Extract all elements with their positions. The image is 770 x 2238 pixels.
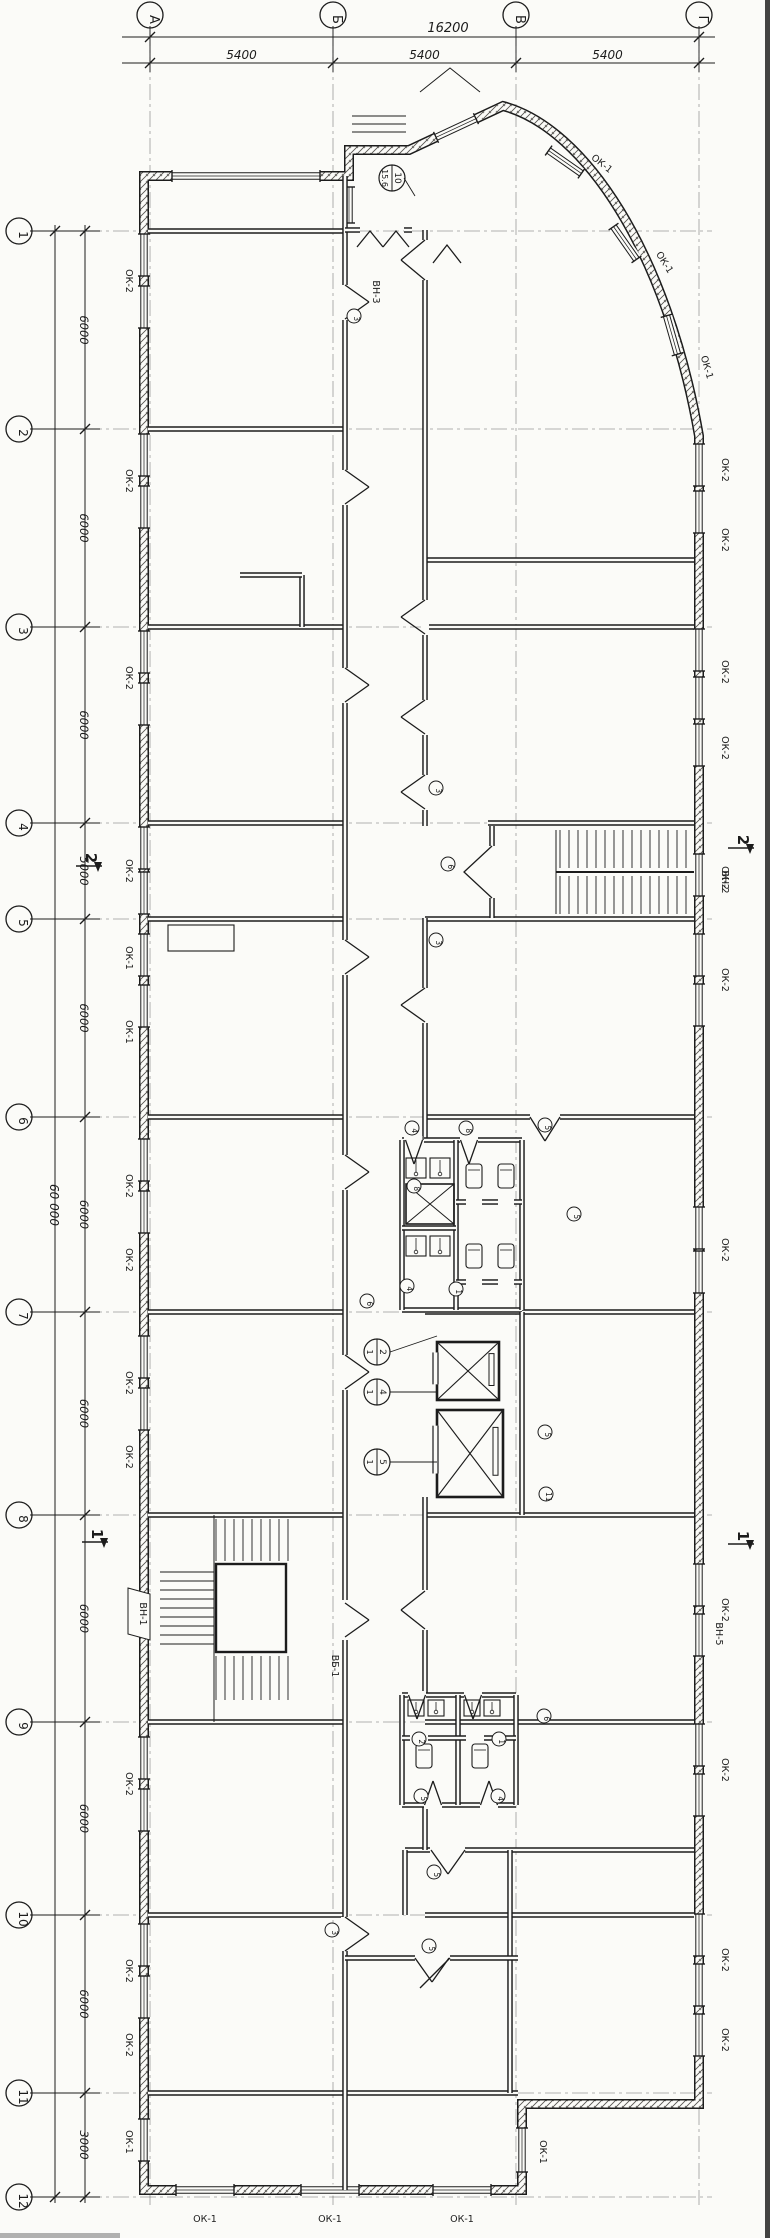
plan-label: ОК-2 xyxy=(123,1371,134,1395)
plan-label: ОК-2 xyxy=(123,859,134,883)
window-symbol xyxy=(138,2119,150,2161)
door-symbol xyxy=(461,1136,478,1164)
plan-label: ОК-2 xyxy=(123,1959,134,1983)
plan-label: ОК-2 xyxy=(719,1238,730,1262)
window-symbol xyxy=(693,444,705,486)
window-symbol xyxy=(693,629,705,671)
window-symbol xyxy=(693,854,705,896)
plan-label: ОК-2 xyxy=(123,666,134,690)
plan-label: ОК-2 xyxy=(123,269,134,293)
svg-text:1: 1 xyxy=(497,1739,506,1744)
window-symbol xyxy=(693,491,705,533)
window-symbol xyxy=(138,1139,150,1181)
window-symbol xyxy=(138,872,150,914)
window-symbol xyxy=(693,1964,705,2006)
window-symbol xyxy=(138,1976,150,2018)
plan-label: ОК-1 xyxy=(123,2130,134,2154)
plan-label: ОК-1 xyxy=(537,2140,548,2164)
window-symbol xyxy=(138,486,150,528)
window-symbol xyxy=(693,934,705,976)
door-symbol xyxy=(465,1691,482,1719)
svg-text:1: 1 xyxy=(734,1531,752,1541)
plan-label: ОК-2 xyxy=(123,469,134,493)
svg-text:3000: 3000 xyxy=(77,2130,91,2159)
svg-text:5400: 5400 xyxy=(409,48,440,62)
drawing-sheet: 16200540054005400АБВГ60 0006000600060005… xyxy=(0,0,770,2238)
door-symbol xyxy=(401,240,429,280)
svg-text:11: 11 xyxy=(544,1492,553,1502)
svg-text:12: 12 xyxy=(16,2193,30,2208)
plan-label: ВН-1 xyxy=(137,1602,148,1625)
door-symbol xyxy=(341,668,369,702)
window-symbol xyxy=(693,677,705,719)
plan-label: ОК-1 xyxy=(123,946,134,970)
interior-walls xyxy=(148,176,694,2190)
svg-text:1: 1 xyxy=(365,1389,374,1394)
svg-text:5: 5 xyxy=(427,1946,436,1951)
svg-text:6000: 6000 xyxy=(77,710,91,739)
window-symbol xyxy=(138,934,150,976)
svg-text:8: 8 xyxy=(412,1186,421,1191)
door-symbol xyxy=(406,1136,423,1164)
plan-label: ОК-2 xyxy=(719,1598,730,1622)
svg-text:6: 6 xyxy=(365,1301,374,1306)
svg-text:1: 1 xyxy=(365,1349,374,1354)
svg-text:3: 3 xyxy=(16,627,30,635)
svg-text:5: 5 xyxy=(543,1125,552,1130)
door-symbol xyxy=(401,600,429,634)
plan-label: ОК-2 xyxy=(719,2028,730,2052)
svg-text:5400: 5400 xyxy=(592,48,623,62)
window-symbol xyxy=(138,1737,150,1779)
dimensions: 16200540054005400АБВГ60 0006000600060005… xyxy=(6,2,715,2210)
svg-text:6000: 6000 xyxy=(77,1003,91,1032)
svg-text:4: 4 xyxy=(410,1128,419,1133)
svg-text:2: 2 xyxy=(16,429,30,437)
plan-label: ОК-2 xyxy=(719,736,730,760)
svg-text:4: 4 xyxy=(405,1286,414,1291)
window-symbol xyxy=(693,1724,705,1766)
svg-text:3: 3 xyxy=(330,1930,339,1935)
window-symbol xyxy=(693,1207,705,1249)
svg-text:6000: 6000 xyxy=(77,1399,91,1428)
svg-text:16200: 16200 xyxy=(427,21,468,36)
door-number-marks: 33634858541651162154535 xyxy=(325,309,581,1953)
svg-text:6000: 6000 xyxy=(77,1200,91,1229)
svg-text:60 000: 60 000 xyxy=(47,1184,61,1226)
floor-plan-svg: 16200540054005400АБВГ60 0006000600060005… xyxy=(0,0,770,2238)
door-symbol xyxy=(409,1691,426,1719)
door-symbol xyxy=(341,1917,369,1951)
svg-text:3: 3 xyxy=(434,940,443,945)
stairs xyxy=(128,830,694,1722)
window-symbol xyxy=(138,985,150,1027)
svg-text:4: 4 xyxy=(377,1389,387,1395)
window-symbol xyxy=(138,683,150,725)
windows xyxy=(138,113,705,2196)
window-symbol xyxy=(138,1924,150,1966)
svg-text:Б: Б xyxy=(329,15,344,24)
door-symbol xyxy=(341,940,369,974)
plan-label: ОК-2 xyxy=(123,2033,134,2057)
svg-text:10: 10 xyxy=(392,172,402,184)
plan-label: ОК-1 xyxy=(318,2214,342,2225)
plan-label: ВБ-1 xyxy=(329,1655,340,1678)
svg-text:6: 6 xyxy=(446,864,455,869)
window-symbol xyxy=(138,1388,150,1430)
window-symbol xyxy=(301,2184,359,2196)
svg-text:6000: 6000 xyxy=(77,1604,91,1633)
plan-label: ОК-1 xyxy=(193,2214,217,2225)
plan-label: ОК-2 xyxy=(719,968,730,992)
window-symbol xyxy=(172,170,320,182)
svg-text:5: 5 xyxy=(16,919,30,927)
svg-text:10: 10 xyxy=(16,1911,30,1926)
window-symbol xyxy=(693,1564,705,1606)
door-symbol xyxy=(341,1603,369,1637)
plan-label: ВН-3 xyxy=(370,280,381,303)
window-symbol xyxy=(138,1191,150,1233)
plan-label: ОК-1 xyxy=(450,2214,474,2225)
exterior-walls xyxy=(144,106,699,2190)
svg-text:4: 4 xyxy=(496,1796,505,1801)
door-symbol xyxy=(341,1155,369,1189)
door-symbol xyxy=(341,470,369,504)
room-tag: 51 xyxy=(364,1449,390,1475)
window-symbol xyxy=(693,984,705,1026)
svg-text:5: 5 xyxy=(432,1872,441,1877)
door-symbol xyxy=(341,1355,369,1389)
svg-text:2: 2 xyxy=(417,1739,426,1744)
window-symbol xyxy=(693,1614,705,1656)
window-symbol xyxy=(138,286,150,328)
svg-text:4: 4 xyxy=(16,823,30,831)
door-symbol xyxy=(401,1591,429,1629)
svg-text:1: 1 xyxy=(365,1459,374,1464)
svg-text:2: 2 xyxy=(377,1349,387,1355)
window-symbol xyxy=(693,1251,705,1293)
room-tag: 41 xyxy=(364,1379,390,1405)
plan-label: ОК-2 xyxy=(719,1948,730,1972)
svg-text:1: 1 xyxy=(16,231,30,239)
svg-text:3: 3 xyxy=(352,316,361,321)
plan-label: ОК-1 xyxy=(698,354,715,380)
window-symbol xyxy=(693,1774,705,1816)
window-symbol xyxy=(176,2184,234,2196)
svg-text:9: 9 xyxy=(16,1722,30,1730)
svg-text:5: 5 xyxy=(419,1796,428,1801)
door-symbol xyxy=(401,700,429,734)
svg-text:7: 7 xyxy=(16,1312,30,1320)
plan-label: ВН-2 xyxy=(719,870,730,893)
plan-label: ОК-2 xyxy=(719,458,730,482)
window-symbol xyxy=(138,827,150,869)
svg-text:11: 11 xyxy=(16,2089,30,2104)
window-symbol xyxy=(434,113,479,142)
room-tag: 1015.6 xyxy=(379,165,405,191)
svg-text:А: А xyxy=(146,15,161,24)
door-symbol xyxy=(415,1954,449,1982)
svg-text:15.6: 15.6 xyxy=(380,169,389,187)
plan-label: ОК-2 xyxy=(123,1445,134,1469)
svg-text:2: 2 xyxy=(734,835,752,845)
window-symbol xyxy=(516,2128,528,2172)
door-symbol xyxy=(401,775,429,809)
svg-text:6: 6 xyxy=(542,1716,551,1721)
svg-text:6000: 6000 xyxy=(77,1989,91,2018)
plan-label: ОК-2 xyxy=(123,1772,134,1796)
window-symbol xyxy=(693,2014,705,2056)
plan-label: ОК-1 xyxy=(123,1020,134,1044)
window-symbol xyxy=(138,1336,150,1378)
plan-label: ОК-2 xyxy=(719,528,730,552)
svg-text:6000: 6000 xyxy=(77,315,91,344)
window-symbol xyxy=(138,631,150,673)
window-symbol xyxy=(138,234,150,276)
svg-text:6000: 6000 xyxy=(77,513,91,542)
plan-label: ОК-2 xyxy=(719,1758,730,1782)
svg-text:5: 5 xyxy=(543,1432,552,1437)
svg-text:5400: 5400 xyxy=(226,48,257,62)
svg-text:5: 5 xyxy=(377,1459,387,1465)
svg-text:1: 1 xyxy=(454,1289,463,1294)
plan-label: ОК-2 xyxy=(719,660,730,684)
door-symbol xyxy=(401,988,429,1022)
svg-text:Г: Г xyxy=(695,16,710,24)
svg-text:6: 6 xyxy=(16,1117,30,1125)
window-symbol xyxy=(138,1789,150,1831)
plan-label: ВН-5 xyxy=(713,1622,724,1645)
svg-text:6000: 6000 xyxy=(77,1804,91,1833)
room-tag: 21 xyxy=(364,1339,390,1365)
window-symbol xyxy=(693,724,705,766)
svg-text:8: 8 xyxy=(464,1128,473,1133)
elevator-shafts xyxy=(432,1342,503,1497)
plan-label: ОК-2 xyxy=(123,1248,134,1272)
window-symbol xyxy=(138,434,150,476)
svg-text:1: 1 xyxy=(88,1529,106,1539)
svg-text:В: В xyxy=(512,15,527,24)
plan-label: ОК-2 xyxy=(123,1174,134,1198)
svg-text:8: 8 xyxy=(16,1515,30,1523)
window-symbol xyxy=(433,2184,491,2196)
svg-text:2: 2 xyxy=(82,853,100,863)
svg-text:5: 5 xyxy=(572,1214,581,1219)
svg-text:3: 3 xyxy=(434,788,443,793)
window-symbol xyxy=(693,1914,705,1956)
